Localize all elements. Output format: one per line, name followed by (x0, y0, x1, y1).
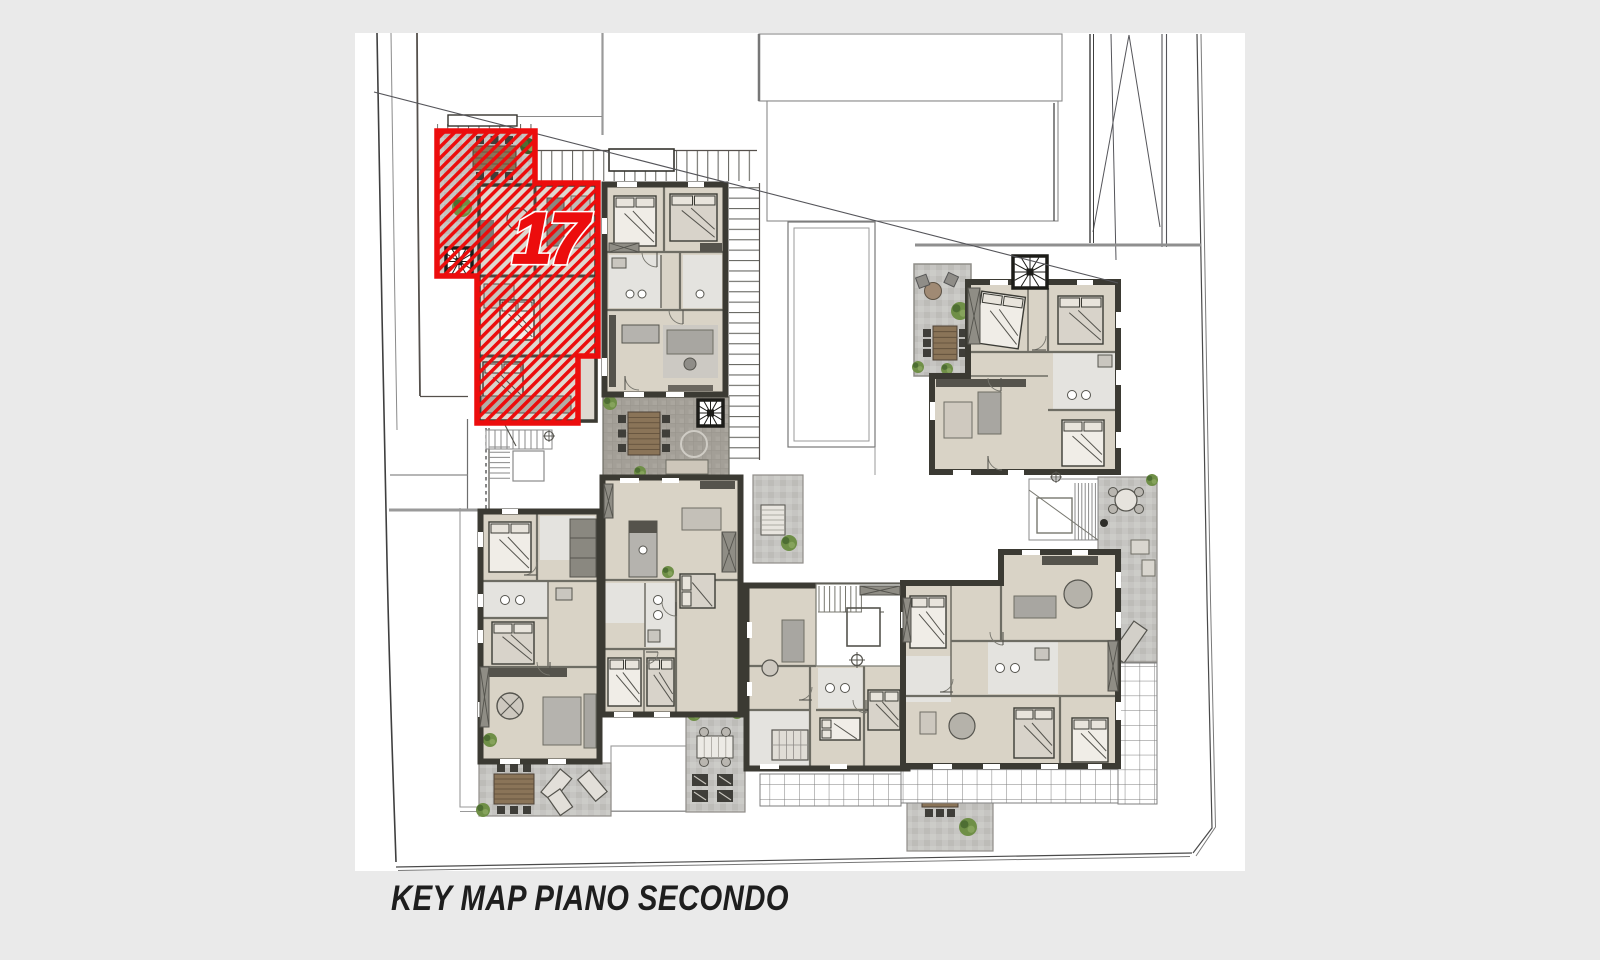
svg-text:KEY MAP PIANO SECONDO: KEY MAP PIANO SECONDO (391, 879, 789, 918)
svg-text:17: 17 (512, 199, 592, 279)
